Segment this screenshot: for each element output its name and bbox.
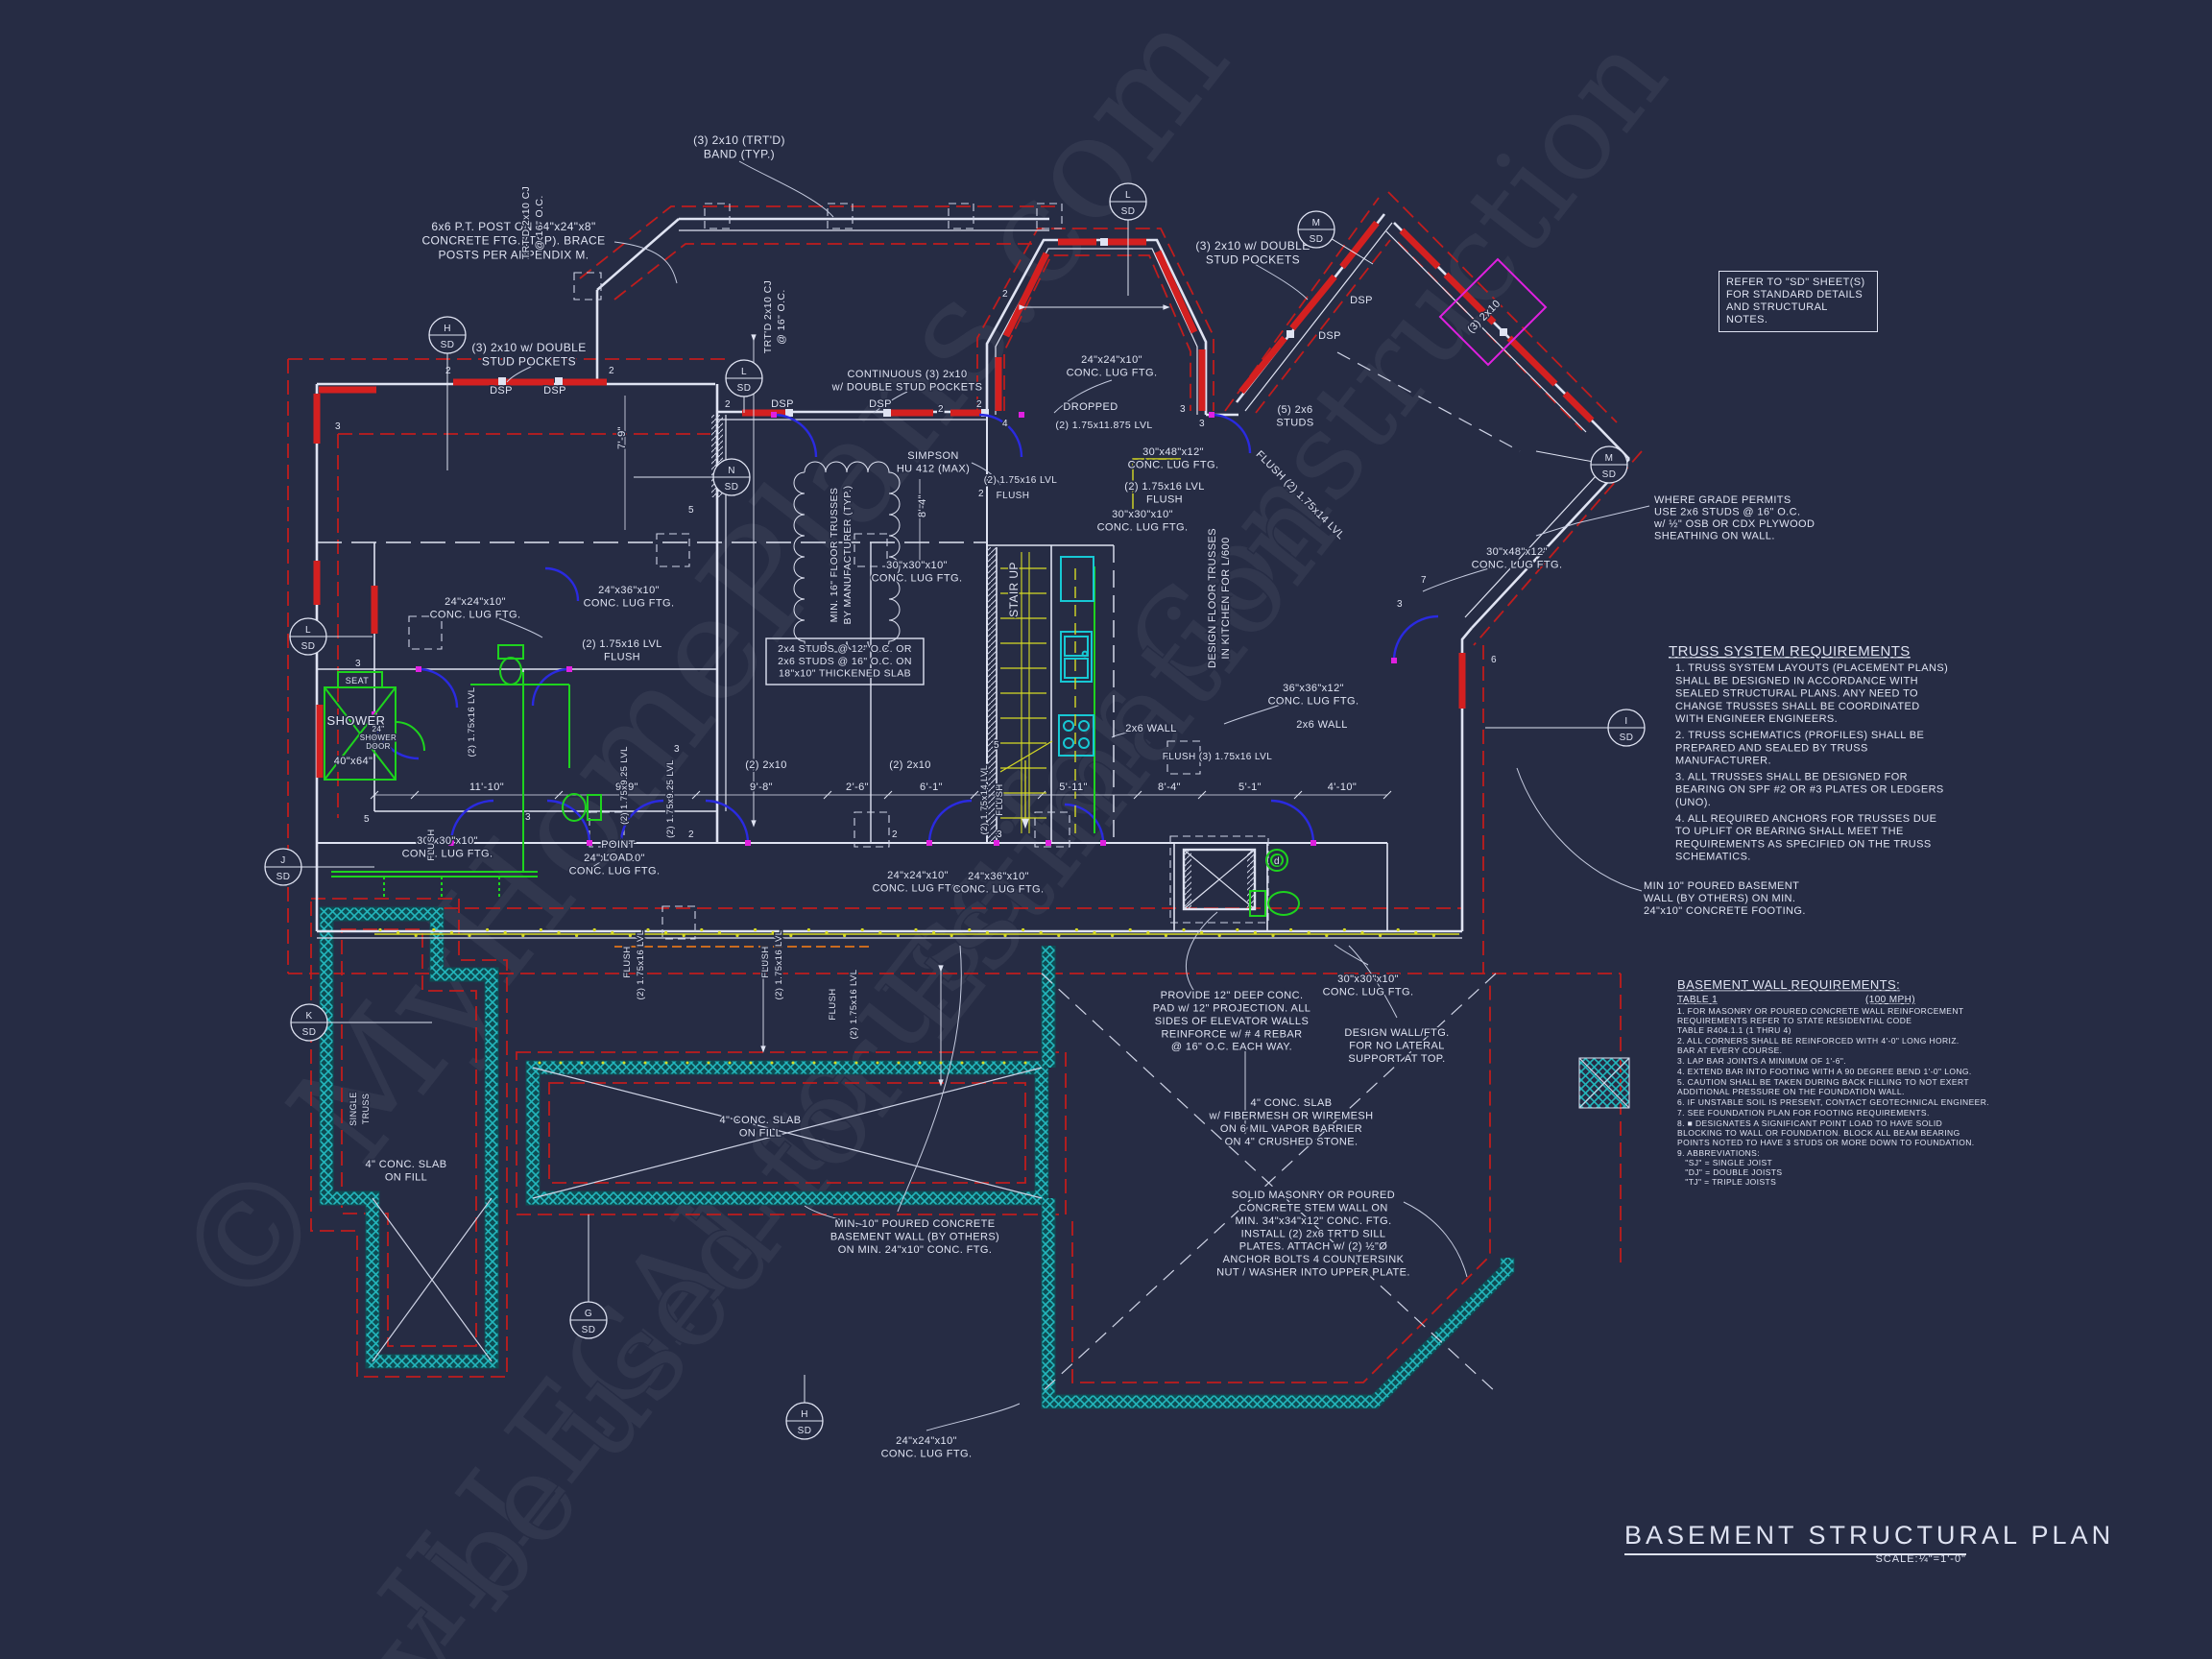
plan-label: FLUSH — [828, 988, 838, 1020]
plan-label: POINTLOAD — [601, 839, 636, 863]
detail-tag-sheet: SD — [725, 482, 739, 493]
refer-note-box: REFER TO "SD" SHEET(S) FOR STANDARD DETA… — [1719, 271, 1878, 332]
plan-label: 3 — [1199, 419, 1205, 429]
plan-label: (2) 1.75x16 LVL — [984, 475, 1057, 486]
plan-label: 11'-10" — [469, 781, 504, 793]
plan-label: 30"x48"x12"CONC. LUG FTG. — [1128, 446, 1219, 470]
plan-label: 1. TRUSS SYSTEM LAYOUTS (PLACEMENT PLANS… — [1675, 662, 1948, 725]
plan-label: DSP — [1318, 330, 1341, 342]
plan-label: 24"x24"x10"CONC. LUG FTG. — [1067, 354, 1158, 378]
detail-tag-letter: L — [1125, 190, 1131, 201]
plan-label: 2x6 WALL — [1296, 719, 1348, 731]
plan-label: 5 — [364, 814, 370, 825]
plan-label: DSP — [490, 385, 513, 397]
plan-label: 5'-11" — [1059, 781, 1088, 793]
plan-label: MIN 10" POURED BASEMENTWALL (BY OTHERS) … — [1644, 880, 1806, 917]
plan-label: d — [1274, 856, 1280, 867]
plan-label: 3 — [674, 744, 680, 755]
plan-label: 24"SHOWERDOOR — [360, 725, 397, 751]
plan-label: 2 — [892, 829, 898, 840]
plan-label: 6 — [1491, 655, 1497, 665]
plan-label: 9'-8" — [750, 781, 773, 793]
plan-label: FLUSH — [622, 946, 633, 977]
refer-note-line: REFER TO "SD" SHEET(S) — [1726, 276, 1870, 289]
detail-tag-letter: M — [1312, 218, 1321, 228]
plan-label: 2 — [609, 366, 614, 376]
plan-label: 2. TRUSS SCHEMATICS (PROFILES) SHALL BEP… — [1675, 730, 1924, 767]
detail-tag-sheet: SD — [582, 1325, 596, 1335]
basement-structural-plan-drawing: © MyHomePlans.comILLEGAL to use for Cons… — [0, 0, 2212, 1659]
plan-label: STAIR UP — [1007, 562, 1021, 617]
detail-tag-sheet: SD — [1602, 469, 1617, 480]
detail-tag-letter: H — [801, 1409, 808, 1420]
detail-tag-letter: M — [1605, 453, 1614, 464]
plan-label: MIN. 10" POURED CONCRETEBASEMENT WALL (B… — [830, 1218, 999, 1256]
plan-label: 9. ABBREVIATIONS: "SJ" = SINGLE JOIST "D… — [1677, 1148, 1782, 1187]
plan-label: TABLE 1 — [1677, 995, 1718, 1005]
detail-tag-sheet: SD — [441, 340, 455, 350]
plan-label: (3) 2x10 (TRT'D)BAND (TYP.) — [693, 133, 785, 161]
plan-label: (3) 2x10 w/ DOUBLESTUD POCKETS — [1195, 239, 1310, 267]
plan-label: TRT'D 2x10 CJ — [762, 280, 774, 353]
plan-label: (2) 1.75x14 LVL — [979, 765, 990, 835]
detail-tag-sheet: SD — [301, 641, 316, 652]
plan-label: 3 — [1397, 599, 1403, 610]
plan-label: FLUSH — [995, 783, 1005, 815]
plan-label: BASEMENT WALL REQUIREMENTS: — [1677, 977, 1900, 992]
detail-tag-letter: K — [305, 1011, 312, 1022]
plan-label: 4'-10" — [1328, 781, 1357, 793]
plan-label: (2) 1.75x9.25 LVL — [619, 746, 630, 825]
plan-label: 2'-6" — [846, 781, 869, 793]
plan-label: (2) 1.75x16 LVL — [774, 930, 784, 1000]
plan-label: SINGLE — [349, 1092, 358, 1125]
plan-label: 7. SEE FOUNDATION PLAN FOR FOOTING REQUI… — [1677, 1108, 1930, 1118]
sheet-scale: SCALE:¼"=1'-0" — [1875, 1553, 1966, 1565]
plan-label: 3. LAP BAR JOINTS A MINIMUM OF 1'-6". — [1677, 1056, 1846, 1066]
plan-label: DSP — [869, 398, 892, 410]
plan-label: (2) 1.75x9.25 LVL — [665, 759, 676, 838]
plan-label: (2) 2x10 — [889, 759, 931, 771]
plan-label: 6x6 P.T. POST ON 24"x24"x8"CONCRETE FTG.… — [421, 220, 605, 261]
plan-label: 2 — [938, 404, 944, 415]
plan-label: 30"x30"x10"CONC. LUG FTG. — [872, 560, 963, 584]
detail-tag-sheet: SD — [1121, 206, 1136, 217]
plan-label: 7 — [1421, 575, 1427, 586]
plan-label: 6. IF UNSTABLE SOIL IS PRESENT, CONTACT … — [1677, 1097, 1989, 1107]
plan-label: 2. ALL CORNERS SHALL BE REINFORCED WITH … — [1677, 1036, 1960, 1055]
plan-label: DSP — [771, 398, 794, 410]
plan-label: SEAT — [346, 676, 370, 685]
plan-label: (2) 1.75x16 LVL — [467, 687, 477, 757]
plan-label: 30"x48"x12"CONC. LUG FTG. — [1472, 546, 1563, 570]
refer-note-line: FOR STANDARD DETAILS — [1726, 289, 1870, 301]
plan-label: 5'-1" — [1238, 781, 1262, 793]
plan-label: TRUSS — [361, 1094, 371, 1125]
plan-label: 4 — [1002, 419, 1008, 429]
plan-label: 24"x24"x10"CONC. LUG FTG. — [430, 596, 521, 620]
detail-tag-sheet: SD — [1620, 733, 1634, 743]
plan-label: 40"x64" — [334, 756, 373, 767]
plan-label: (2) 1.75x11.875 LVL — [1055, 420, 1152, 431]
plan-label: 3 — [525, 812, 531, 823]
plan-label: TRUSS SYSTEM REQUIREMENTS — [1669, 643, 1911, 660]
detail-tag-letter: N — [728, 466, 735, 476]
plan-label: FLUSH — [997, 491, 1030, 501]
detail-tag-letter: J — [280, 855, 285, 866]
detail-tag-letter: L — [305, 625, 311, 636]
plan-label: 2 — [978, 489, 984, 499]
plan-label: 2 — [1002, 289, 1008, 300]
plan-label: 1. FOR MASONRY OR POURED CONCRETE WALL R… — [1677, 1006, 1964, 1035]
detail-tag-letter: G — [585, 1309, 592, 1319]
plan-label: @ 16" O.C. — [776, 289, 787, 344]
plan-label: (2) 2x10 — [745, 759, 787, 771]
plan-label: 7'-9" — [616, 426, 628, 449]
plan-label: WHERE GRADE PERMITSUSE 2x6 STUDS @ 16" O… — [1653, 494, 1815, 542]
plan-label: 30"x30"x10"CONC. LUG FTG. — [1323, 974, 1414, 998]
plan-label: 4. EXTEND BAR INTO FOOTING WITH A 90 DEG… — [1677, 1067, 1972, 1076]
plan-label: SOLID MASONRY OR POUREDCONCRETE STEM WAL… — [1216, 1190, 1410, 1279]
plan-label: 4" CONC. SLABw/ FIBERMESH OR WIREMESHON … — [1209, 1097, 1374, 1147]
plan-label: 2 — [445, 366, 451, 376]
plan-label: 5 — [688, 505, 694, 516]
plan-label: SIMPSONHU 412 (MAX) — [897, 450, 970, 474]
plan-label: 2 — [976, 399, 982, 410]
plan-label: 2x6 WALL — [1125, 723, 1177, 734]
plan-label: DSP — [543, 385, 566, 397]
plan-label: 8'-4" — [1158, 781, 1181, 793]
plan-label: (2) 1.75x16 LVL — [849, 970, 859, 1040]
plan-label: 2 — [688, 829, 694, 840]
blueprint-canvas: © MyHomePlans.comILLEGAL to use for Cons… — [0, 0, 2212, 1659]
plan-label: 2x4 STUDS @ 12" O.C. OR2x6 STUDS @ 16" O… — [778, 643, 912, 680]
plan-label: 3 — [355, 659, 361, 669]
plan-label: 6'-1" — [920, 781, 943, 793]
plan-label: 8'-4" — [917, 494, 928, 517]
plan-label: 4. ALL REQUIRED ANCHORS FOR TRUSSES DUET… — [1675, 813, 1936, 863]
refer-note-line: AND STRUCTURAL NOTES. — [1726, 301, 1870, 326]
detail-tag-letter: I — [1624, 716, 1627, 727]
plan-label: (3) 2x10 w/ DOUBLESTUD POCKETS — [471, 341, 586, 369]
plan-label: (5) 2x6STUDS — [1276, 404, 1313, 428]
plan-label: (2) 1.75x16 LVL — [636, 930, 646, 1000]
plan-label: 2 — [725, 399, 731, 410]
plan-label: (2) 1.75x16 LVLFLUSH — [1124, 481, 1204, 505]
plan-label: 5 — [994, 740, 999, 751]
plan-label: DROPPED — [1063, 401, 1118, 413]
plan-label: 3 — [1180, 404, 1186, 415]
detail-tag-sheet: SD — [798, 1426, 812, 1436]
sheet-title: BASEMENT STRUCTURAL PLAN — [1624, 1521, 2114, 1550]
plan-label: 3 — [997, 829, 1002, 840]
plan-label: 8. ■ DESIGNATES A SIGNIFICANT POINT LOAD… — [1677, 1118, 1975, 1147]
plan-label: @ 16" O.C. — [534, 195, 545, 250]
detail-tag-letter: H — [444, 324, 451, 334]
plan-label: DSP — [1350, 295, 1373, 306]
plan-label: 36"x36"x12"CONC. LUG FTG. — [1268, 683, 1359, 707]
plan-label: TRT'D 2x10 CJ — [520, 186, 532, 259]
detail-tag-sheet: SD — [1310, 234, 1324, 245]
plan-label: FLUSH (3) 1.75x16 LVL — [1163, 752, 1272, 762]
plan-label: 30"x30"x10"CONC. LUG FTG. — [1097, 509, 1189, 533]
plan-label: 3. ALL TRUSSES SHALL BE DESIGNED FORBEAR… — [1675, 771, 1944, 808]
plan-label: (100 MPH) — [1865, 995, 1915, 1005]
detail-tag-letter: L — [741, 367, 747, 377]
plan-label: 24"x24"x10"CONC. LUG FTG. — [881, 1435, 973, 1459]
plan-label: CONTINUOUS (3) 2x10w/ DOUBLE STUD POCKET… — [831, 369, 983, 393]
plan-label: PROVIDE 12" DEEP CONC.PAD w/ 12" PROJECT… — [1153, 990, 1310, 1053]
detail-tag-sheet: SD — [737, 383, 752, 394]
plan-label: DESIGN WALL/FTG.FOR NO LATERALSUPPORT AT… — [1344, 1027, 1449, 1065]
plan-label: FLUSH — [760, 946, 771, 977]
detail-tag-sheet: SD — [302, 1027, 317, 1038]
detail-tag-sheet: SD — [276, 872, 291, 882]
plan-label: 3 — [335, 421, 341, 432]
plan-label: 5. CAUTION SHALL BE TAKEN DURING BACK FI… — [1677, 1077, 1969, 1096]
plan-label: FLUSH — [426, 829, 437, 860]
title-block: BASEMENT STRUCTURAL PLAN SCALE:¼"=1'-0" — [1624, 1521, 1966, 1555]
